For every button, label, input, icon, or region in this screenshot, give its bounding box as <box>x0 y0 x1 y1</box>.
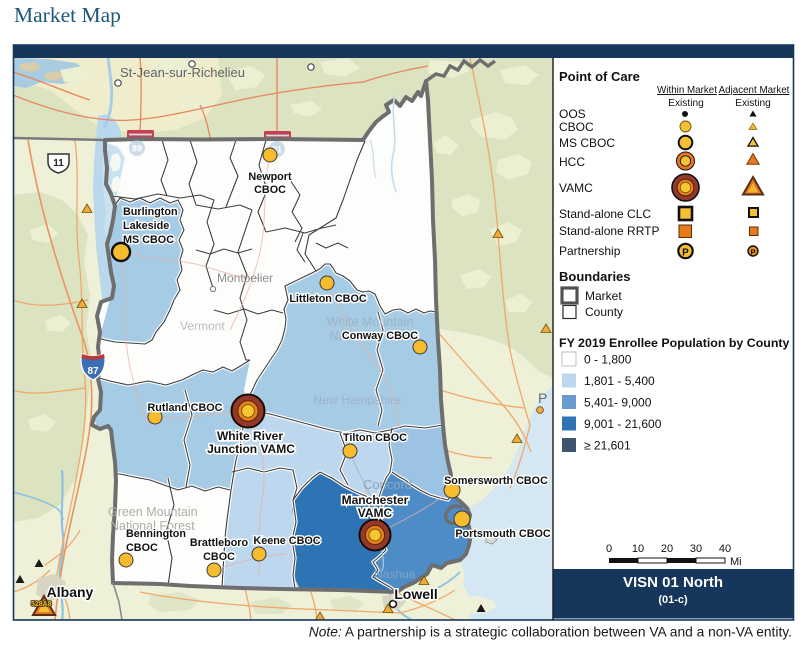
svg-text:Portsmouth CBOC: Portsmouth CBOC <box>455 528 551 540</box>
svg-text:MS CBOC: MS CBOC <box>123 234 174 246</box>
svg-text:Somersworth CBOC: Somersworth CBOC <box>444 475 548 487</box>
svg-text:Burlington: Burlington <box>123 206 178 218</box>
svg-text:P: P <box>538 390 547 406</box>
svg-text:Mi: Mi <box>730 556 742 568</box>
svg-text:Keene CBOC: Keene CBOC <box>253 535 320 547</box>
svg-text:County: County <box>585 305 623 319</box>
svg-text:Montpelier: Montpelier <box>217 271 273 285</box>
svg-text:Boundaries: Boundaries <box>559 269 631 284</box>
svg-text:Vermont: Vermont <box>180 319 225 333</box>
svg-text:87: 87 <box>87 366 99 377</box>
svg-text:White River: White River <box>217 429 283 443</box>
svg-text:P: P <box>750 248 755 257</box>
svg-text:HCC: HCC <box>559 155 585 169</box>
svg-text:Manchester: Manchester <box>342 493 409 507</box>
svg-text:CBOC: CBOC <box>203 551 235 563</box>
svg-text:New Hampshire: New Hampshire <box>313 393 401 407</box>
svg-text:5,401- 9,000: 5,401- 9,000 <box>584 396 652 410</box>
svg-text:Stand-alone CLC: Stand-alone CLC <box>559 207 651 221</box>
svg-text:CBOC: CBOC <box>254 184 286 196</box>
svg-text:VAMC: VAMC <box>358 506 393 520</box>
svg-text:FY 2019 Enrollee Population by: FY 2019 Enrollee Population by County <box>559 336 790 350</box>
svg-text:P: P <box>682 248 689 259</box>
svg-text:Junction VAMC: Junction VAMC <box>207 442 295 456</box>
svg-text:11: 11 <box>53 158 64 169</box>
svg-text:Bennington: Bennington <box>126 528 186 540</box>
svg-text:CBOC: CBOC <box>559 120 594 134</box>
svg-text:Point of Care: Point of Care <box>559 69 640 84</box>
svg-text:1,801 - 5,400: 1,801 - 5,400 <box>584 374 655 388</box>
svg-text:Within Market: Within Market <box>657 85 717 96</box>
svg-text:20: 20 <box>661 543 673 555</box>
svg-text:CBOC: CBOC <box>126 542 158 554</box>
svg-text:30: 30 <box>690 543 702 555</box>
svg-text:Albany: Albany <box>47 584 94 600</box>
svg-text:0: 0 <box>606 543 612 555</box>
svg-text:Partnership: Partnership <box>559 244 621 258</box>
svg-text:VAMC: VAMC <box>559 181 593 195</box>
svg-text:Littleton CBOC: Littleton CBOC <box>289 293 367 305</box>
svg-text:Green Mountain: Green Mountain <box>108 505 198 519</box>
svg-text:Lakeside: Lakeside <box>123 220 169 232</box>
svg-text:Rutland CBOC: Rutland CBOC <box>148 402 223 414</box>
svg-text:VISN 01 North: VISN 01 North <box>623 574 723 591</box>
svg-text:Lowell: Lowell <box>394 586 438 602</box>
svg-text:Conway CBOC: Conway CBOC <box>342 330 418 342</box>
svg-text:St-Jean-sur-Richelieu: St-Jean-sur-Richelieu <box>120 65 245 80</box>
svg-text:40: 40 <box>719 543 731 555</box>
svg-text:Existing: Existing <box>668 98 704 109</box>
svg-text:(01-c): (01-c) <box>658 594 688 606</box>
svg-text:0 - 1,800: 0 - 1,800 <box>584 353 632 367</box>
svg-text:OOS: OOS <box>559 107 586 121</box>
svg-text:Market: Market <box>585 289 622 303</box>
svg-text:MS CBOC: MS CBOC <box>559 136 615 150</box>
svg-text:Adjacent Market: Adjacent Market <box>719 85 790 96</box>
svg-text:White Mountain: White Mountain <box>327 315 414 329</box>
svg-text:10: 10 <box>632 543 644 555</box>
svg-text:≥ 21,601: ≥ 21,601 <box>584 439 631 453</box>
svg-text:Concord: Concord <box>363 477 412 492</box>
svg-text:Tilton CBOC: Tilton CBOC <box>343 432 407 444</box>
svg-text:Brattleboro: Brattleboro <box>190 537 249 549</box>
svg-text:Existing: Existing <box>735 98 771 109</box>
svg-text:Note: A partnership is a strat: Note: A partnership is a strategic colla… <box>309 625 792 640</box>
svg-text:9,001 - 21,600: 9,001 - 21,600 <box>584 417 662 431</box>
svg-text:Newport: Newport <box>248 171 292 183</box>
svg-text:Market Map: Market Map <box>14 3 121 27</box>
svg-text:528A8: 528A8 <box>31 601 52 608</box>
svg-text:Stand-alone RRTP: Stand-alone RRTP <box>559 224 660 238</box>
svg-text:Nashua: Nashua <box>374 567 416 581</box>
svg-text:89: 89 <box>132 144 142 154</box>
